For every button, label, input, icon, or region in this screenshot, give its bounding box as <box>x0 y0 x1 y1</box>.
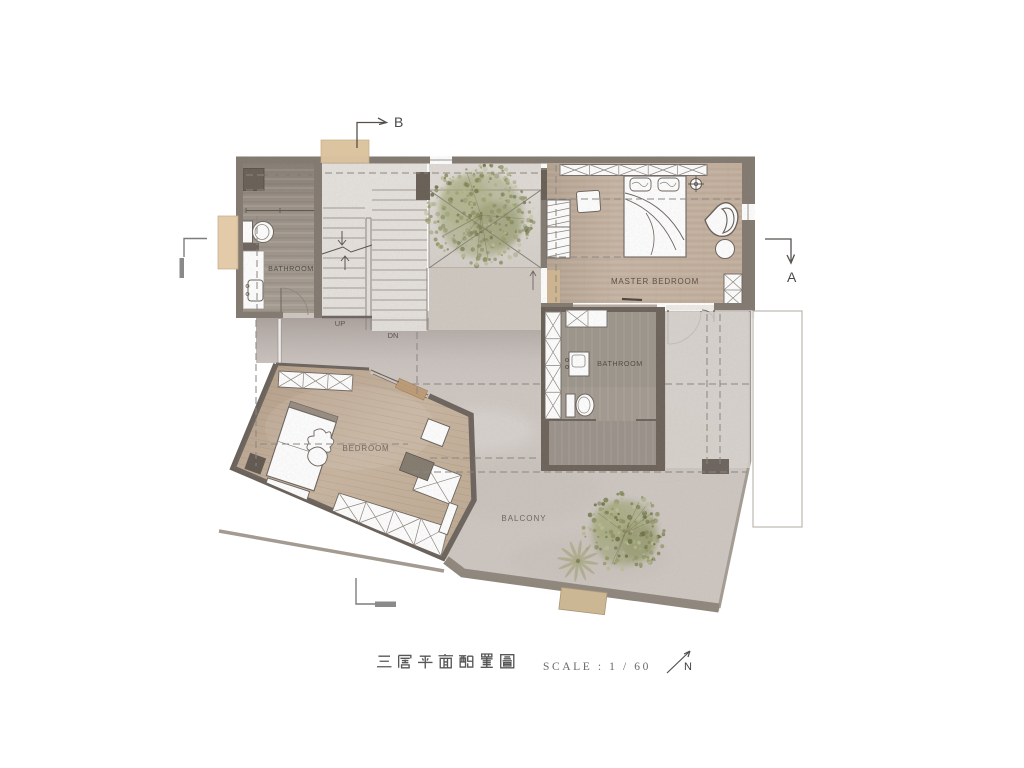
svg-text:BALCONY: BALCONY <box>501 514 546 523</box>
svg-text:SCALE : 1 / 60: SCALE : 1 / 60 <box>543 661 651 673</box>
svg-text:B: B <box>394 114 403 130</box>
svg-text:N: N <box>684 661 692 673</box>
svg-text:A: A <box>787 269 797 285</box>
